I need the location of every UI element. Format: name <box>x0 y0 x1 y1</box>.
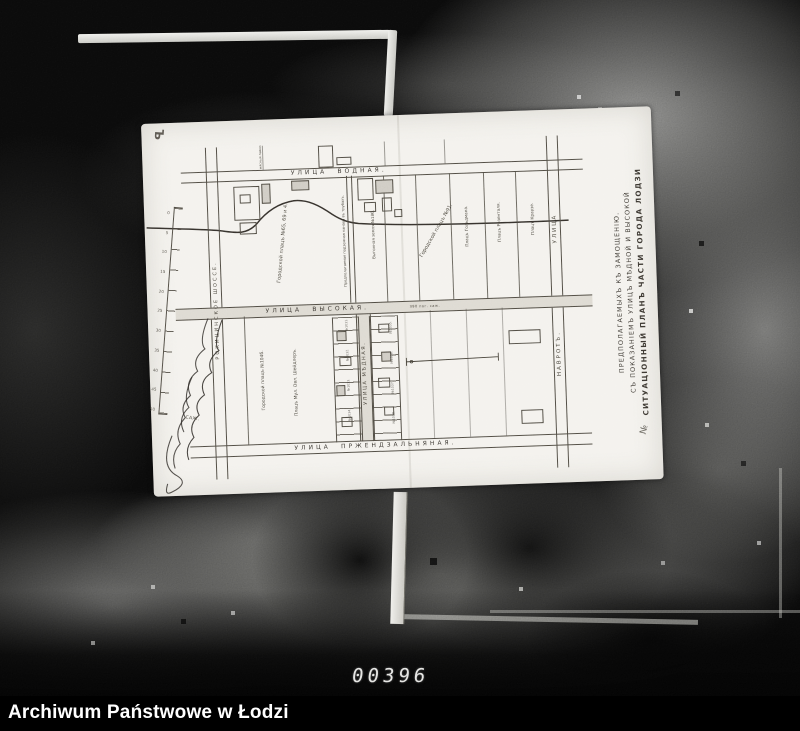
map-title-block: СИТУАЦІОННЫЙ ПЛАНЪ ЧАСТИ ГОРОДА ЛОДЗИ СЪ… <box>598 146 662 438</box>
survey-line <box>406 353 498 366</box>
label-strip-b: Плацъ Розенталя. <box>495 177 503 267</box>
parcel-number: №1031. <box>344 319 348 332</box>
scale-tick: 10 <box>162 249 167 254</box>
label-sw-block: Городской плацъ №104б. <box>260 338 268 423</box>
scale-tick: 15 <box>160 269 165 274</box>
scale-tick: 40 <box>153 367 158 372</box>
label-strip-c: Плацъ Краузе. <box>528 171 536 266</box>
dust-specks-dark <box>0 0 3 3</box>
scale-tick: 50 <box>150 406 155 411</box>
parcel-number: №1038. <box>391 411 395 424</box>
scale-tick: 0 <box>167 210 170 215</box>
parcel-line <box>502 307 507 435</box>
caption-bar: Archiwum Państwowe w Łodzi <box>0 696 800 731</box>
building <box>394 209 402 217</box>
building <box>261 184 271 204</box>
building <box>508 329 540 344</box>
parcel-line <box>483 172 488 298</box>
folder-edge-horizontal <box>490 610 800 613</box>
handwritten-mark-bottom-right: № <box>639 424 651 435</box>
building <box>336 385 345 396</box>
map-sheet: УЛИЦА ВОДНАЯ. УЛИЦА ВЫСОКАЯ. 390 пог. са… <box>141 106 664 497</box>
parcel-number: №1032. <box>345 349 349 362</box>
parcel-line <box>430 310 435 438</box>
parcel-number: №1034. <box>347 409 351 422</box>
parcel-number: №1033. <box>346 379 350 392</box>
label-nw-block: Городской плацъ №65, 69 и 4. <box>276 196 290 291</box>
archive-photo-frame: УЛИЦА ВОДНАЯ. УЛИЦА ВЫСОКАЯ. 390 пог. са… <box>0 0 800 731</box>
handwritten-mark-top-left: Ъ <box>152 128 167 140</box>
parcel-line <box>415 174 420 300</box>
label-strip-a: Плацъ Гольдмана. <box>462 184 470 269</box>
label-shops: мясныя лавки. <box>258 144 263 170</box>
label-plats-91: Городской плацъ №91. <box>413 192 461 269</box>
archive-name: Archiwum Państwowe w Łodzi <box>8 702 289 724</box>
scale-tick: 45 <box>151 387 156 392</box>
label-sw-block2: Плацъ Мул. Овл. Шейдлеръ. <box>292 327 301 437</box>
parcel-line <box>444 139 446 163</box>
parcel-line <box>449 173 454 299</box>
building <box>336 157 351 166</box>
building <box>336 331 346 341</box>
scale-tick: 35 <box>154 347 159 352</box>
scale-unit-label: САЖ. <box>185 415 200 422</box>
building <box>291 180 309 191</box>
scale-tick: 30 <box>156 328 161 333</box>
folder-edge-vertical <box>779 468 782 618</box>
building <box>382 197 392 211</box>
parcel-line <box>515 171 520 297</box>
parcel-number: №1037. <box>390 381 394 394</box>
building <box>378 377 390 387</box>
scale-tick: 25 <box>157 308 162 313</box>
parcel-line <box>466 309 471 437</box>
building <box>375 179 393 194</box>
parcel-number: №1035. <box>388 321 392 334</box>
frame-counter: 00396 <box>350 665 430 687</box>
parcel-line <box>244 316 249 444</box>
scale-tick: 20 <box>159 288 164 293</box>
survey-point <box>410 360 413 363</box>
parcel-number: №1036. <box>389 351 393 364</box>
building <box>240 222 257 235</box>
building <box>240 194 251 203</box>
scale-tick: 5 <box>166 230 169 235</box>
building <box>521 409 543 424</box>
parcel-line <box>384 142 386 166</box>
parcel-line <box>383 176 388 302</box>
building <box>318 145 334 168</box>
